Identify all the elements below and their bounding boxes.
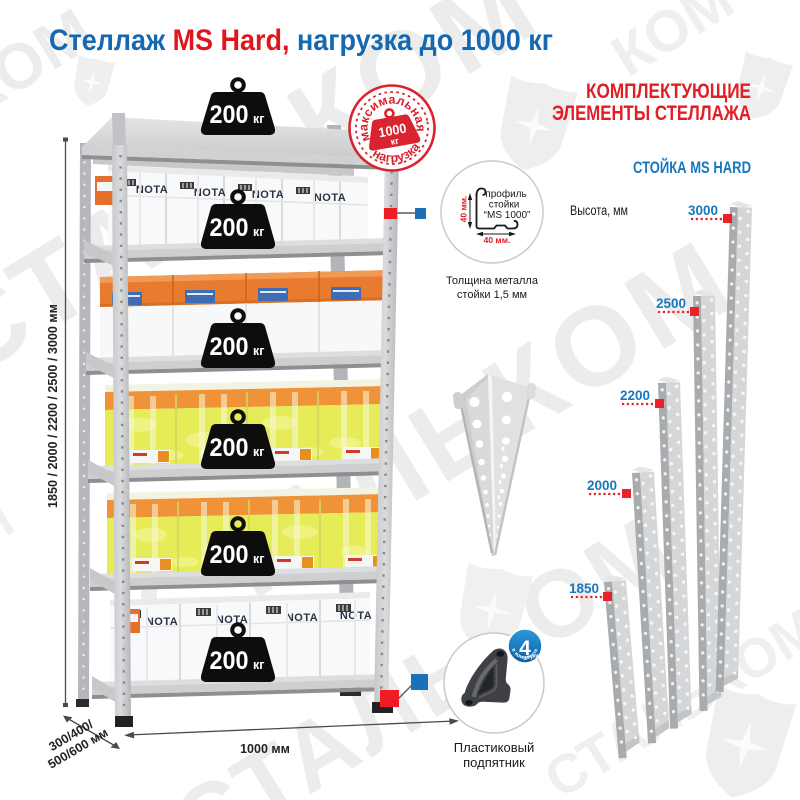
svg-text:200: 200 xyxy=(210,101,249,129)
svg-text:200: 200 xyxy=(210,333,249,361)
svg-text:кг: кг xyxy=(253,445,264,459)
svg-text:NOTA: NOTA xyxy=(146,616,178,628)
svg-text:200: 200 xyxy=(210,434,249,462)
svg-text:40 мм.: 40 мм. xyxy=(484,235,511,245)
svg-text:3000: 3000 xyxy=(688,203,718,218)
svg-text:подпятник: подпятник xyxy=(463,755,525,770)
svg-text:профиль: профиль xyxy=(485,188,526,200)
svg-text:стойки 1,5 мм: стойки 1,5 мм xyxy=(457,289,527,301)
svg-text:NOTA: NOTA xyxy=(286,612,318,624)
svg-text:СТОЙКА MS HARD: СТОЙКА MS HARD xyxy=(633,158,751,177)
svg-text:КОМПЛЕКТУЮЩИЕ: КОМПЛЕКТУЮЩИЕ xyxy=(586,80,751,103)
svg-text:кг: кг xyxy=(253,658,264,672)
svg-text:“MS 1000”: “MS 1000” xyxy=(484,210,531,221)
svg-text:1000 мм: 1000 мм xyxy=(240,742,290,756)
svg-text:200: 200 xyxy=(210,214,249,242)
svg-text:Стеллаж MS Hard, нагрузка до 1: Стеллаж MS Hard, нагрузка до 1000 кг xyxy=(49,24,553,57)
svg-text:2500: 2500 xyxy=(656,296,686,311)
svg-text:Пластиковый: Пластиковый xyxy=(454,740,534,755)
svg-text:NOTA: NOTA xyxy=(216,614,248,626)
svg-text:кг: кг xyxy=(253,225,264,239)
svg-text:ЭЛЕМЕНТЫ СТЕЛЛАЖА: ЭЛЕМЕНТЫ СТЕЛЛАЖА xyxy=(552,102,751,125)
svg-text:кг: кг xyxy=(253,344,264,358)
svg-text:Высота, мм: Высота, мм xyxy=(570,203,628,218)
svg-text:2200: 2200 xyxy=(620,388,650,403)
svg-text:кг: кг xyxy=(253,552,264,566)
svg-text:40 мм.: 40 мм. xyxy=(459,196,469,223)
svg-text:2000: 2000 xyxy=(587,478,617,493)
svg-text:1850 / 2000 / 2200 / 2500 / 30: 1850 / 2000 / 2200 / 2500 / 3000 мм xyxy=(45,304,60,508)
svg-text:200: 200 xyxy=(210,541,249,569)
svg-text:200: 200 xyxy=(210,647,249,675)
svg-text:1850: 1850 xyxy=(569,581,599,596)
svg-text:NOTA: NOTA xyxy=(314,192,346,204)
svg-text:кг: кг xyxy=(253,112,264,126)
svg-text:стойки: стойки xyxy=(489,200,520,211)
svg-text:Толщина металла: Толщина металла xyxy=(446,275,539,287)
